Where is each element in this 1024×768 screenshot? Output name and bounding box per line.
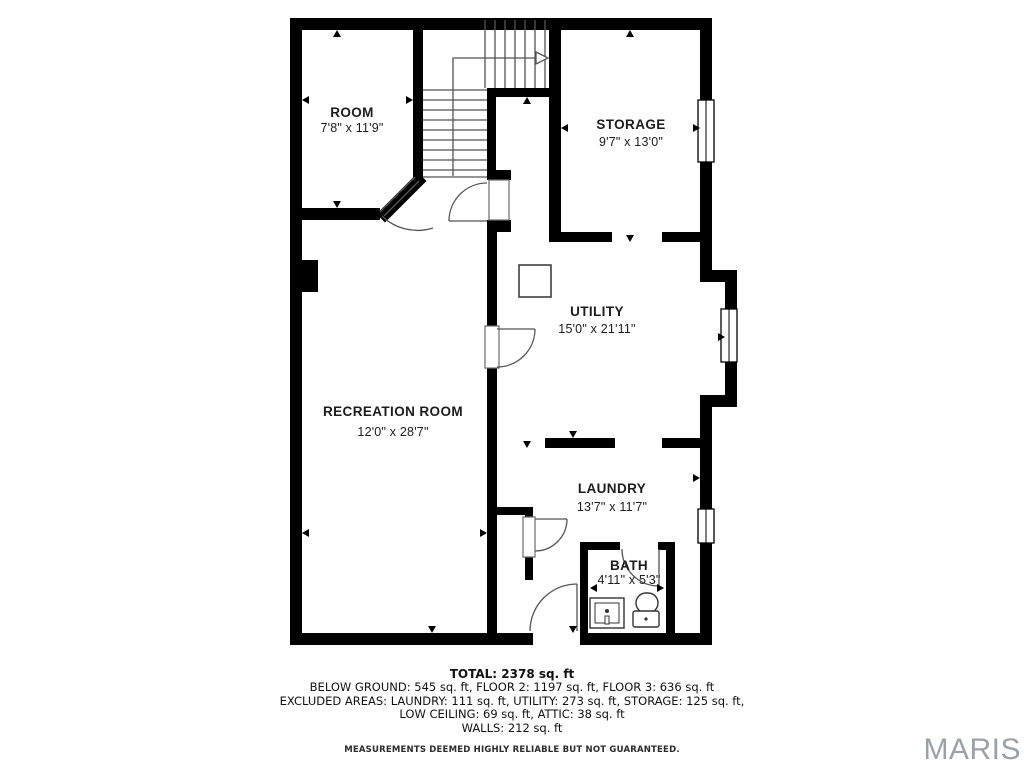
summary-walls: WALLS: 212 sq. ft: [0, 722, 1024, 735]
floorplan: ROOM 7'8" x 11'9" STORAGE 9'7" x 13'0" U…: [0, 0, 1024, 768]
door-frame-closet: [523, 517, 535, 557]
wall-room-right: [413, 18, 423, 180]
wall-corridor-west: [487, 92, 496, 178]
stairs-direction-arrowhead: [536, 52, 548, 64]
wall-diagonal: [385, 181, 418, 214]
summary-disclaimer: MEASUREMENTS DEEMED HIGHLY RELIABLE BUT …: [0, 744, 1024, 757]
wall-hall-chunk-top: [487, 170, 511, 180]
stairs-lower-treads: [423, 90, 487, 177]
chimney-bump: [290, 260, 318, 292]
summary-areas: BELOW GROUND: 545 sq. ft, FLOOR 2: 1197 …: [0, 681, 1024, 694]
wall-recroom-right: [487, 232, 497, 633]
wall-bath-left: [580, 542, 588, 633]
dims-bath: 4'11" x 5'3": [597, 573, 660, 587]
wall-hall-chunk-bottom: [487, 220, 511, 232]
dims-utility: 15'0" x 21'11": [558, 322, 635, 336]
summary-excluded-2: LOW CEILING: 69 sq. ft, ATTIC: 38 sq. ft: [0, 708, 1024, 721]
wall-storage-left: [549, 18, 561, 238]
wall-laundry-top-a: [545, 438, 615, 448]
door-closet: [535, 519, 567, 551]
wall-top: [290, 18, 712, 30]
wall-bottom-left: [290, 633, 533, 645]
wall-bottom-right: [580, 633, 712, 645]
door-exterior: [530, 584, 577, 631]
wall-storage-bottom-b: [662, 232, 712, 242]
maris-logo: MARIS: [923, 733, 1021, 767]
dims-laundry: 13'7" x 11'7": [577, 500, 647, 514]
summary-total: TOTAL: 2378 sq. ft: [0, 668, 1024, 681]
wall-jut-bottom: [700, 395, 737, 407]
dims-room: 7'8" x 11'9": [320, 121, 383, 135]
staircase: [423, 20, 548, 177]
wall-laundry-top-b: [662, 438, 712, 448]
area-summary: TOTAL: 2378 sq. ft BELOW GROUND: 545 sq.…: [0, 668, 1024, 757]
wall-bath-right: [666, 542, 675, 633]
door-stairs: [380, 177, 433, 230]
label-bath: BATH: [610, 558, 648, 573]
utility-equipment-box: [519, 265, 551, 297]
wall-storage-bottom-a: [549, 232, 612, 242]
door-utility: [497, 329, 535, 367]
dims-storage: 9'7" x 13'0": [599, 135, 663, 149]
label-utility: UTILITY: [570, 304, 624, 319]
label-recreation: RECREATION ROOM: [323, 404, 463, 419]
wall-under-stairs: [487, 88, 549, 97]
wall-room-bottom: [290, 208, 380, 220]
wall-closet-stub: [497, 507, 533, 515]
wall-left: [290, 18, 302, 645]
label-room: ROOM: [330, 105, 374, 120]
bath-toilet: [633, 593, 659, 627]
dims-recreation: 12'0" x 28'7": [357, 425, 428, 439]
wall-jut-top: [700, 270, 737, 282]
label-laundry: LAUNDRY: [578, 481, 646, 496]
door-frame-hall: [489, 180, 509, 220]
bath-sink: [590, 598, 624, 628]
door-frame-utility: [485, 326, 499, 368]
summary-excluded-1: EXCLUDED AREAS: LAUNDRY: 111 sq. ft, UTI…: [0, 695, 1024, 708]
door-hall: [449, 183, 487, 221]
wall-bath-top-a: [580, 542, 620, 550]
label-storage: STORAGE: [596, 117, 665, 132]
